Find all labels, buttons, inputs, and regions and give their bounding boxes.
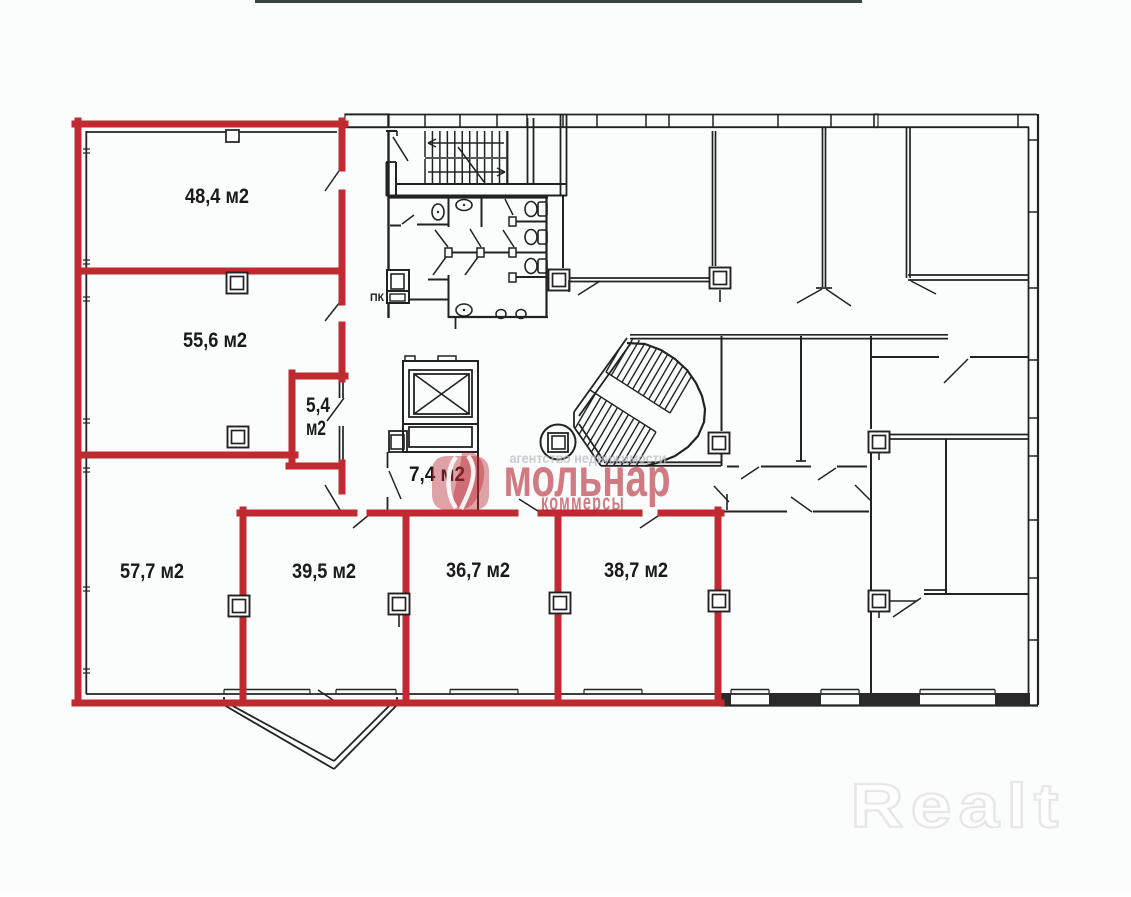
svg-text:57,7 м2: 57,7 м2: [120, 560, 184, 583]
svg-text:м2: м2: [306, 417, 326, 440]
svg-text:38,7 м2: 38,7 м2: [604, 559, 668, 582]
svg-text:48,4 м2: 48,4 м2: [185, 185, 249, 208]
svg-text:39,5 м2: 39,5 м2: [292, 560, 356, 583]
svg-text:коммерсы: коммерсы: [541, 489, 625, 515]
svg-text:ПК: ПК: [370, 292, 384, 304]
svg-text:5,4: 5,4: [306, 394, 330, 417]
svg-text:36,7 м2: 36,7 м2: [446, 559, 510, 582]
svg-text:Realt: Realt: [851, 772, 1066, 841]
svg-text:55,6 м2: 55,6 м2: [183, 329, 247, 352]
